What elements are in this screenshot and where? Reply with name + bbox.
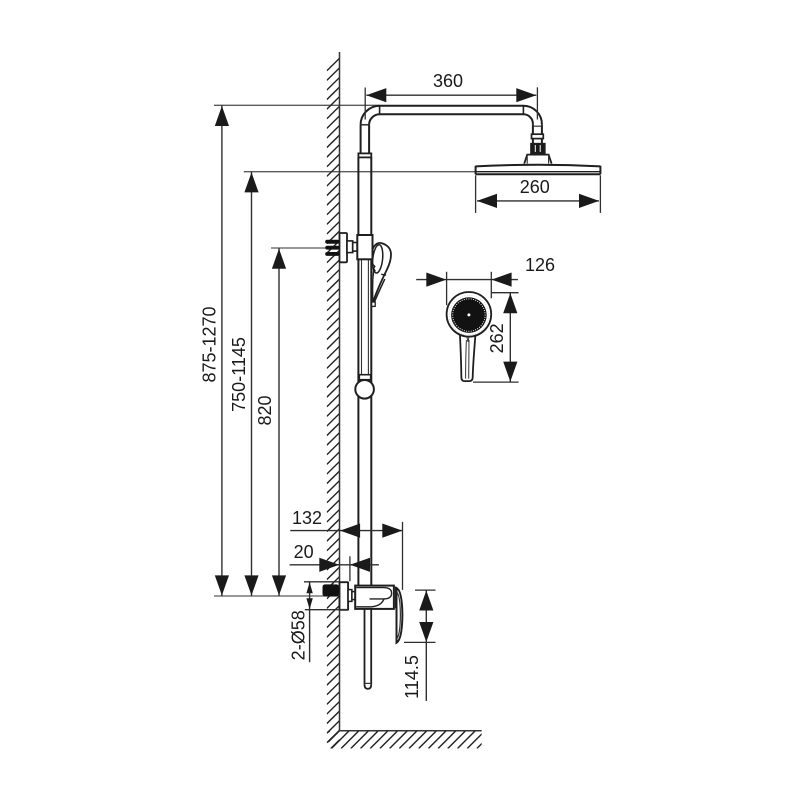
svg-text:260: 260	[520, 177, 550, 197]
svg-text:114.5: 114.5	[402, 655, 422, 699]
svg-text:132: 132	[292, 508, 322, 528]
svg-text:262: 262	[487, 323, 507, 353]
svg-text:875-1270: 875-1270	[199, 306, 219, 382]
svg-text:126: 126	[525, 255, 555, 275]
svg-text:20: 20	[294, 542, 314, 562]
svg-text:820: 820	[255, 395, 275, 425]
svg-text:2-Ø58: 2-Ø58	[288, 610, 308, 660]
svg-text:360: 360	[433, 71, 463, 91]
svg-text:750-1145: 750-1145	[229, 337, 249, 412]
